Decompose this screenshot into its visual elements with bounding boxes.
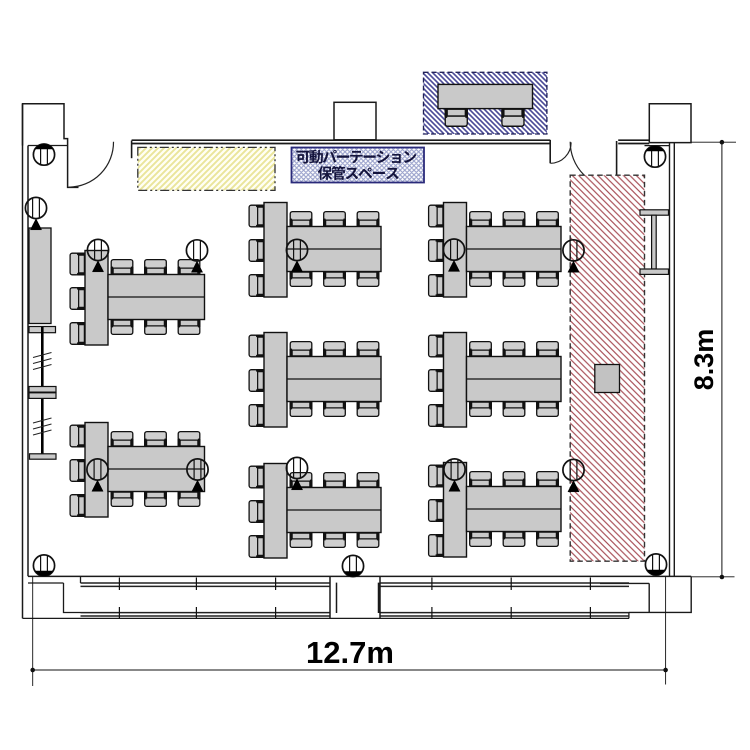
svg-text:12.7m: 12.7m xyxy=(306,635,394,670)
svg-text:8.3m: 8.3m xyxy=(689,329,719,391)
